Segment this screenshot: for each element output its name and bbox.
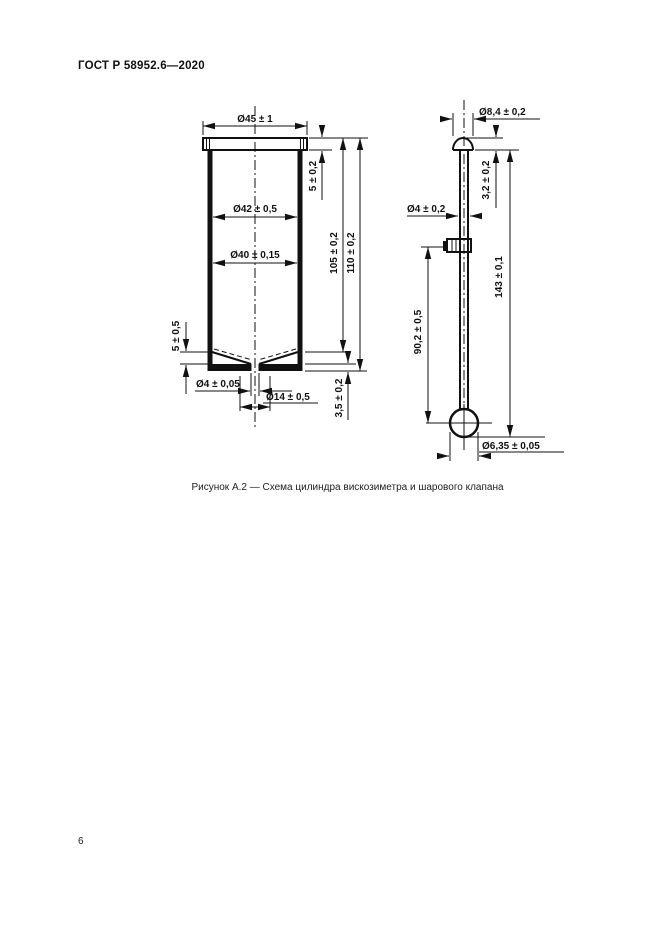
page-number: 6 [78, 836, 84, 847]
dim-head-height: 3,2 ± 0,2 [481, 160, 492, 199]
dim-bore-upper: Ø42 ± 0,5 [233, 204, 277, 215]
dim-total-length: 143 ± 0,1 [494, 256, 505, 298]
valve-head-dome [453, 138, 473, 150]
document-page: { "page": { "header": "ГОСТ Р 58952.6—20… [0, 0, 661, 935]
dim-seat-diameter: Ø14 ± 0,5 [266, 392, 310, 403]
figure-a2-drawing: Ø45 ± 1 Ø42 ± 0,5 Ø40 ± 0,15 5 ± 0,2 105… [0, 0, 661, 935]
dim-flange-height: 5 ± 0,2 [308, 160, 319, 191]
dim-rod-diameter: Ø4 ± 0,2 [407, 204, 446, 215]
figure-caption: Рисунок А.2 — Схема цилиндра вискозиметр… [35, 482, 660, 493]
cylinder-drawing: Ø45 ± 1 Ø42 ± 0,5 Ø40 ± 0,15 5 ± 0,2 105… [171, 106, 368, 428]
dim-flange-diameter: Ø45 ± 1 [237, 114, 273, 125]
dim-total-height: 110 ± 0,2 [346, 232, 357, 274]
dim-head-diameter: Ø8,4 ± 0,2 [479, 107, 526, 118]
dim-inner-depth: 105 ± 0,2 [329, 232, 340, 274]
ball-valve-drawing: Ø8,4 ± 0,2 3,2 ± 0,2 Ø4 ± 0,2 90,2 ± 0,5… [407, 100, 564, 461]
dim-rod-length: 90,2 ± 0,5 [413, 309, 424, 354]
dim-orifice-diameter: Ø4 ± 0,05 [196, 379, 240, 390]
dim-cone-depth: 5 ± 0,5 [171, 320, 182, 351]
dim-ball-diameter: Ø6,35 ± 0,05 [482, 441, 540, 452]
dim-base-thickness: 3,5 ± 0,2 [334, 378, 345, 417]
collar-cap [443, 241, 448, 251]
dim-bore-lower: Ø40 ± 0,15 [230, 250, 280, 261]
